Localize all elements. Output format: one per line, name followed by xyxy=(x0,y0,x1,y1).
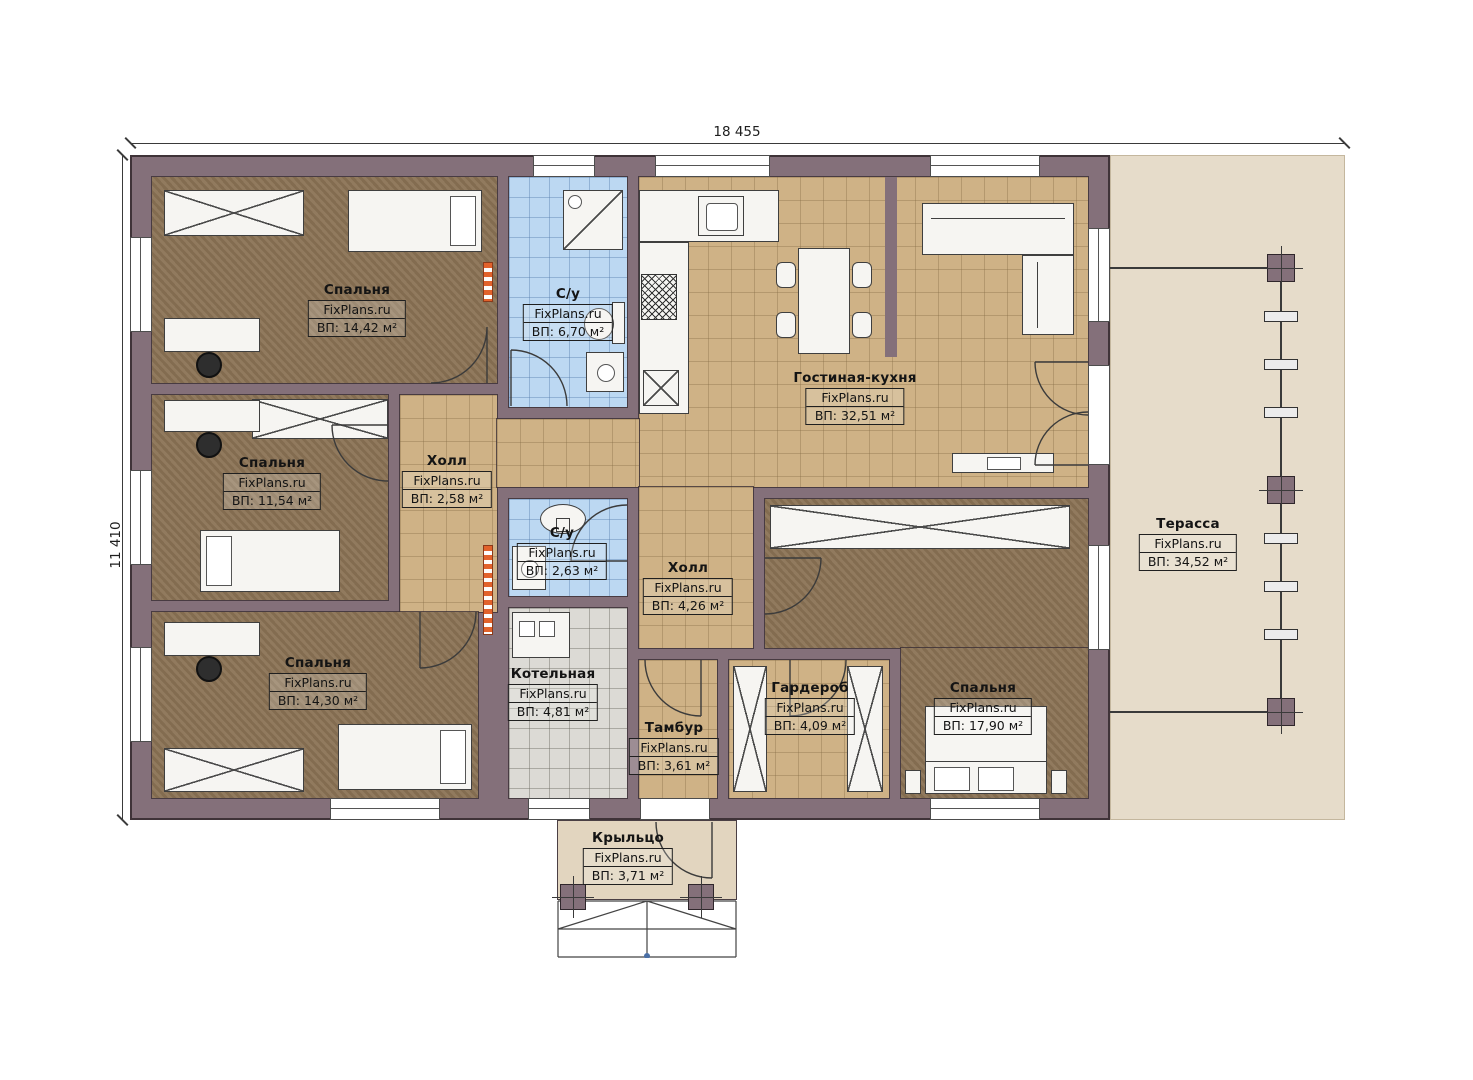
room-label-terrace: Терасса FixPlans.ru ВП: 34,52 м² xyxy=(1139,516,1237,571)
terrace-post xyxy=(1267,254,1295,282)
room-name: Спальня xyxy=(269,655,367,671)
dimension-line-top xyxy=(130,143,1345,144)
window xyxy=(1088,228,1110,322)
railing-baluster xyxy=(1264,311,1298,322)
radiator-symbol xyxy=(483,262,493,302)
closet-symbol xyxy=(164,190,304,236)
railing-baluster xyxy=(1264,629,1298,640)
brand-link: FixPlans.ru xyxy=(584,849,672,867)
room-label-hall-1: Холл FixPlans.ru ВП: 2,58 м² xyxy=(402,453,492,508)
dining-chair-symbol xyxy=(852,262,872,288)
room-name: Холл xyxy=(402,453,492,469)
office-chair-symbol xyxy=(196,352,222,378)
room-area: ВП: 14,30 м² xyxy=(270,692,366,709)
brand-link: FixPlans.ru xyxy=(644,579,732,597)
door-arc xyxy=(332,425,388,481)
nightstand-symbol xyxy=(905,770,921,794)
room-area: ВП: 34,52 м² xyxy=(1140,553,1236,570)
sofa-symbol xyxy=(1022,255,1074,335)
railing-baluster xyxy=(1264,533,1298,544)
brand-link: FixPlans.ru xyxy=(403,472,491,490)
room-area: ВП: 32,51 м² xyxy=(807,407,903,424)
room-label-boiler: Котельная FixPlans.ru ВП: 4,81 м² xyxy=(508,666,598,721)
brand-link: FixPlans.ru xyxy=(270,674,366,692)
room-name: Спальня xyxy=(934,680,1032,696)
room-label-bathroom-2: С/у FixPlans.ru ВП: 2,63 м² xyxy=(517,525,607,580)
room-name: Гостиная-кухня xyxy=(793,370,916,386)
terrace-railing xyxy=(1110,711,1282,713)
room-label-vestibule: Тамбур FixPlans.ru ВП: 3,61 м² xyxy=(629,720,719,775)
dimension-height-label: 11 410 xyxy=(108,505,124,585)
entry-door-opening xyxy=(640,798,710,820)
sofa-symbol xyxy=(922,203,1074,255)
dining-chair-symbol xyxy=(776,262,796,288)
room-name: С/у xyxy=(523,286,613,302)
closet-symbol xyxy=(164,748,304,792)
door-arc xyxy=(765,558,821,614)
room-area: ВП: 2,63 м² xyxy=(518,562,606,579)
dining-chair-symbol xyxy=(776,312,796,338)
room-area: ВП: 14,42 м² xyxy=(309,319,405,336)
room-name: Холл xyxy=(643,560,733,576)
terrace-railing xyxy=(1110,267,1282,269)
brand-link: FixPlans.ru xyxy=(935,699,1031,717)
window xyxy=(130,237,152,332)
room-label-bedroom-4: Спальня FixPlans.ru ВП: 17,90 м² xyxy=(934,680,1032,735)
corridor-floor xyxy=(497,419,639,487)
brand-link: FixPlans.ru xyxy=(224,474,320,492)
window xyxy=(130,647,152,742)
wardrobe-shelf-symbol xyxy=(733,666,767,792)
window xyxy=(930,798,1040,820)
room-area: ВП: 17,90 м² xyxy=(935,717,1031,734)
floor-plan: 18 455 11 410 xyxy=(0,0,1473,1080)
terrace-floor xyxy=(1110,155,1345,820)
shower-symbol xyxy=(563,190,623,250)
office-chair-symbol xyxy=(196,432,222,458)
shower-head-icon xyxy=(568,195,582,209)
boiler-unit-symbol xyxy=(512,612,570,658)
window xyxy=(330,798,440,820)
door-arc xyxy=(420,612,476,668)
terrace-post xyxy=(1267,476,1295,504)
brand-link: FixPlans.ru xyxy=(509,685,597,703)
room-area: ВП: 11,54 м² xyxy=(224,492,320,509)
dining-table-symbol xyxy=(798,248,850,354)
room-area: ВП: 3,71 м² xyxy=(584,867,672,884)
room-label-bedroom-3: Спальня FixPlans.ru ВП: 14,30 м² xyxy=(269,655,367,710)
desk-symbol xyxy=(164,318,260,352)
room-label-porch: Крыльцо FixPlans.ru ВП: 3,71 м² xyxy=(583,830,673,885)
nightstand-symbol xyxy=(1051,770,1067,794)
window xyxy=(528,798,590,820)
door-arc xyxy=(511,350,567,406)
terrace-door-arc xyxy=(1035,412,1088,465)
window xyxy=(655,155,770,177)
porch-post xyxy=(560,884,586,910)
terrace-post xyxy=(1267,698,1295,726)
room-name: Спальня xyxy=(308,282,406,298)
window xyxy=(1088,545,1110,650)
brand-link: FixPlans.ru xyxy=(524,305,612,323)
dimension-width-label: 18 455 xyxy=(677,124,797,140)
room-area: ВП: 4,81 м² xyxy=(509,703,597,720)
room-label-living-kitchen: Гостиная-кухня FixPlans.ru ВП: 32,51 м² xyxy=(793,370,916,425)
office-chair-symbol xyxy=(196,656,222,682)
bed-symbol xyxy=(338,724,472,790)
room-label-bedroom-2: Спальня FixPlans.ru ВП: 11,54 м² xyxy=(223,455,321,510)
brand-link: FixPlans.ru xyxy=(309,301,405,319)
room-name: Гардероб xyxy=(765,680,855,696)
room-area: ВП: 6,70 м² xyxy=(524,323,612,340)
room-label-hall-2: Холл FixPlans.ru ВП: 4,26 м² xyxy=(643,560,733,615)
dimension-line-left xyxy=(122,155,123,820)
room-label-wardrobe: Гардероб FixPlans.ru ВП: 4,09 м² xyxy=(765,680,855,735)
railing-baluster xyxy=(1264,407,1298,418)
railing-baluster xyxy=(1264,359,1298,370)
kitchen-sink-symbol xyxy=(698,196,744,236)
desk-symbol xyxy=(164,400,260,432)
brand-link: FixPlans.ru xyxy=(518,544,606,562)
radiator-symbol xyxy=(483,545,493,635)
closet-symbol xyxy=(770,505,1070,549)
railing-baluster xyxy=(1264,581,1298,592)
room-area: ВП: 4,26 м² xyxy=(644,597,732,614)
door-arc xyxy=(645,660,701,716)
brand-link: FixPlans.ru xyxy=(630,739,718,757)
window xyxy=(533,155,595,177)
room-name: Терасса xyxy=(1139,516,1237,532)
room-area: ВП: 4,09 м² xyxy=(766,717,854,734)
room-name: Спальня xyxy=(223,455,321,471)
room-name: Крыльцо xyxy=(583,830,673,846)
room-name: Котельная xyxy=(508,666,598,682)
brand-link: FixPlans.ru xyxy=(766,699,854,717)
bed-symbol xyxy=(200,530,340,592)
kitchen-partition-wall xyxy=(885,177,897,357)
bed-symbol xyxy=(348,190,482,252)
terrace-door-arc xyxy=(1035,362,1088,415)
room-area: ВП: 2,58 м² xyxy=(403,490,491,507)
stove-symbol xyxy=(641,274,677,320)
door-arc xyxy=(431,327,487,383)
washing-machine-symbol xyxy=(586,352,624,392)
brand-link: FixPlans.ru xyxy=(1140,535,1236,553)
room-area: ВП: 3,61 м² xyxy=(630,757,718,774)
room-name: С/у xyxy=(517,525,607,541)
terrace-door-opening xyxy=(1088,365,1110,465)
dishwasher-symbol xyxy=(643,370,679,406)
room-label-bathroom-1: С/у FixPlans.ru ВП: 6,70 м² xyxy=(523,286,613,341)
dining-chair-symbol xyxy=(852,312,872,338)
window xyxy=(930,155,1040,177)
room-name: Тамбур xyxy=(629,720,719,736)
porch-post xyxy=(688,884,714,910)
window xyxy=(130,470,152,565)
desk-symbol xyxy=(164,622,260,656)
room-label-bedroom-1: Спальня FixPlans.ru ВП: 14,42 м² xyxy=(308,282,406,337)
brand-link: FixPlans.ru xyxy=(807,389,903,407)
